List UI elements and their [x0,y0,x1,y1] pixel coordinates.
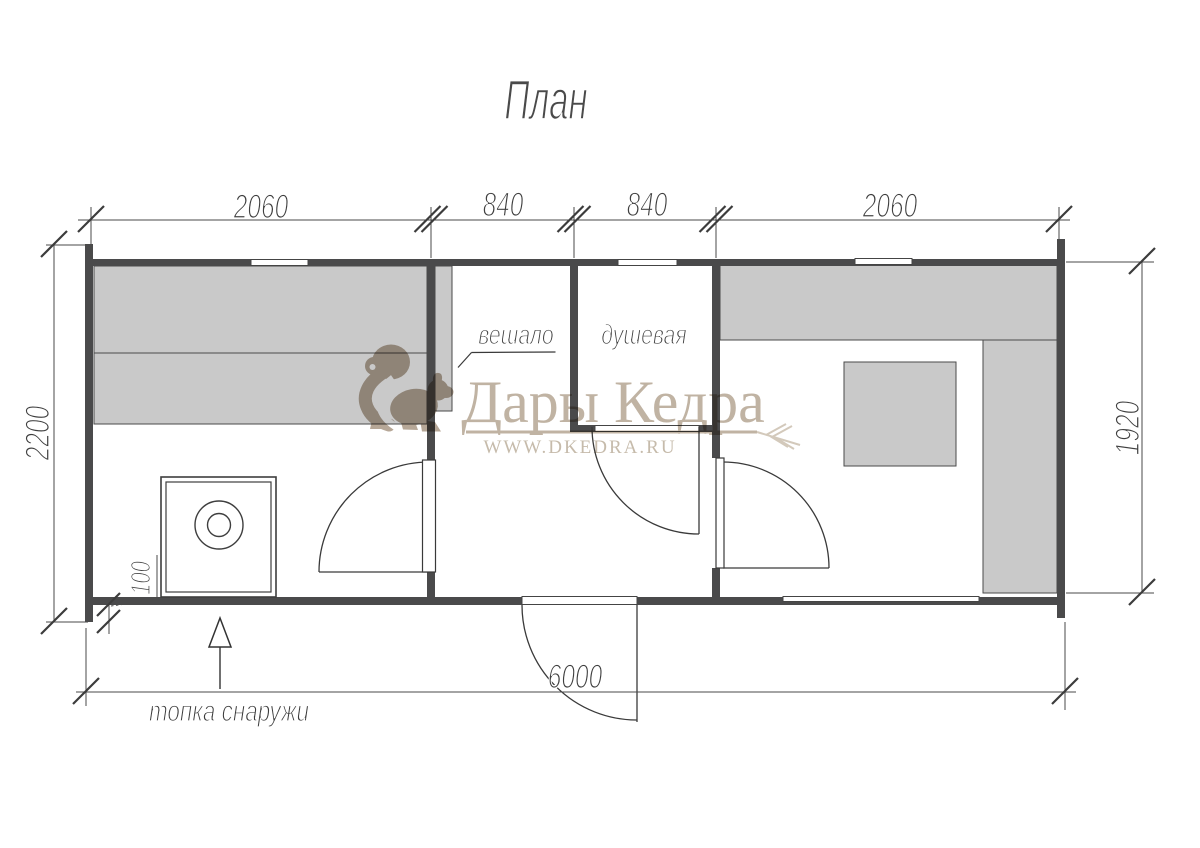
svg-text:100: 100 [126,561,157,595]
svg-text:вешало: вешало [478,319,554,351]
svg-text:840: 840 [627,186,668,224]
svg-text:топка снаружи: топка снаружи [149,694,309,728]
svg-text:душевая: душевая [601,319,686,351]
svg-text:Дары Кедра: Дары Кедра [461,369,765,435]
svg-text:840: 840 [483,186,524,224]
svg-text:WWW.DKEDRA.RU: WWW.DKEDRA.RU [483,437,676,458]
svg-text:2060: 2060 [233,188,289,226]
svg-text:1920: 1920 [1109,400,1147,455]
svg-text:6000: 6000 [548,658,603,696]
svg-text:2200: 2200 [19,405,57,461]
svg-text:План: План [504,69,587,132]
svg-text:2060: 2060 [862,187,918,225]
